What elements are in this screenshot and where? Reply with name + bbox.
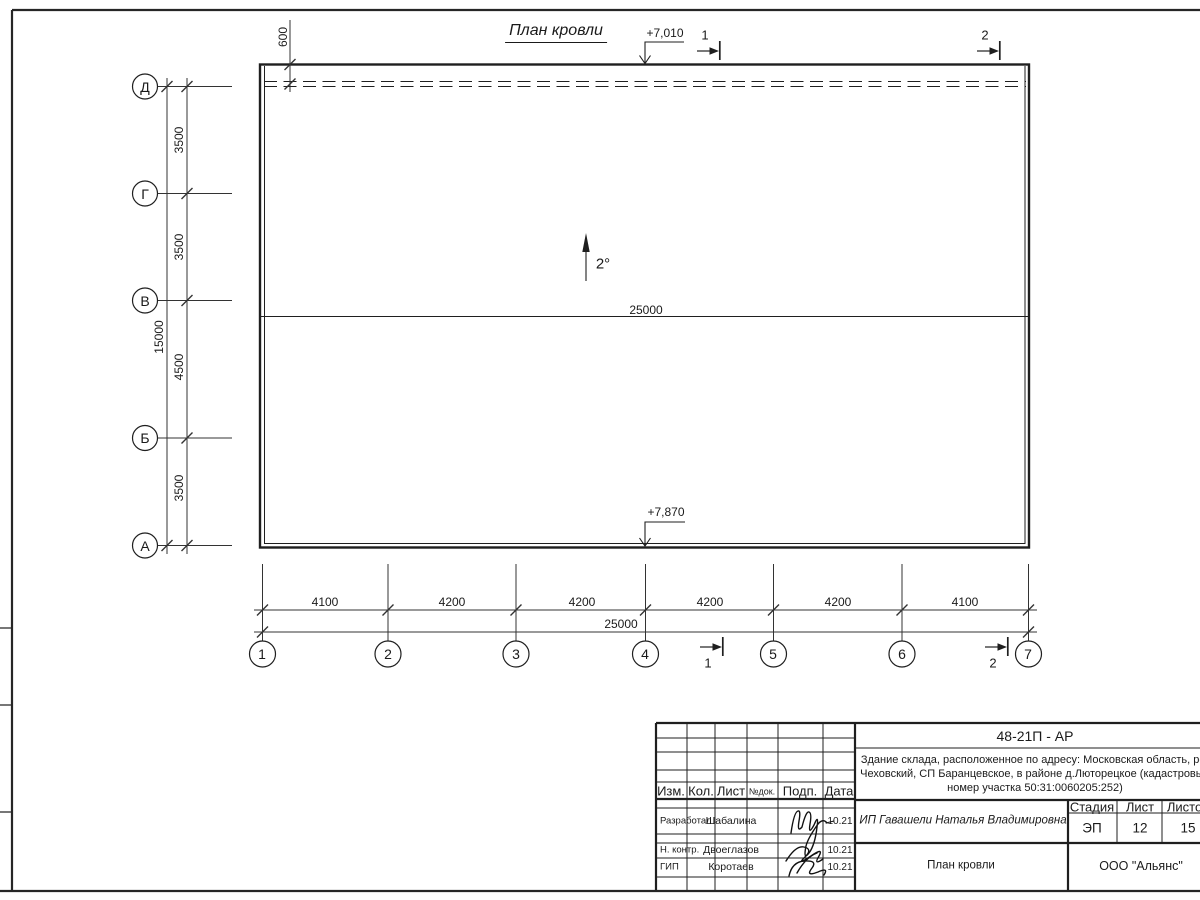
axis-left-b: Б: [140, 431, 149, 445]
client-name: ИП Гавашели Наталья Владимировна: [859, 815, 1066, 827]
col-data: Дата: [825, 785, 854, 798]
elevation-top-label: +7,010: [646, 27, 683, 39]
elevation-leaders: [640, 42, 686, 546]
drawing-sheet: План кровли +7,010 +7,870 600 2° 25000 1…: [0, 0, 1200, 900]
sheets-label: Листов: [1167, 801, 1200, 814]
titleblock-object-description: Здание склада, расположенное по адресу: …: [855, 749, 1200, 799]
slope-arrow: [582, 233, 589, 281]
dim-bottom-total: 25000: [604, 618, 637, 630]
dim-bottom-4: 4200: [697, 596, 724, 608]
stage-value: ЭП: [1082, 821, 1101, 835]
ridge-dim-label: 25000: [629, 304, 662, 316]
col-podp: Подп.: [783, 785, 818, 798]
dim-left-1: 3500: [173, 127, 185, 154]
axis-bottom-2: 2: [384, 647, 392, 661]
axis-left-d: Д: [140, 80, 149, 94]
axis-bottom-3: 3: [512, 647, 520, 661]
row-gip-name: Коротаев: [708, 862, 753, 873]
dim-bottom-6: 4100: [952, 596, 979, 608]
sheet-value: 12: [1132, 821, 1147, 835]
axis-bottom-7: 7: [1024, 647, 1032, 661]
sheet-label: Лист: [1126, 801, 1154, 814]
row-ncontrol-role: Н. контр.: [660, 845, 699, 855]
col-ndoc: №док.: [749, 788, 775, 797]
object-description-line2: Чеховский, СП Баранцевское, в районе д.Л…: [855, 767, 1200, 781]
section-marks: [697, 41, 1008, 656]
col-list: Лист: [717, 785, 745, 798]
company-name: ООО "Альянс": [1099, 860, 1183, 873]
row-ncontrol-date: 10.21: [827, 846, 852, 856]
section-mark-1-bottom: 1: [704, 657, 711, 670]
dim-left-total: 15000: [153, 320, 165, 353]
slope-label: 2°: [596, 257, 610, 272]
section-mark-2-bottom: 2: [989, 657, 996, 670]
col-kol: Кол.: [688, 785, 714, 798]
row-developer-name: Шабалина: [706, 816, 757, 827]
bottom-dimensions: [254, 564, 1037, 641]
dim-left-4: 3500: [173, 475, 185, 502]
row-gip-date: 10.21: [827, 863, 852, 873]
section-mark-2-top: 2: [981, 29, 988, 42]
axis-left-g: Г: [141, 187, 149, 201]
axis-left-a: А: [140, 539, 149, 553]
object-description-line1: Здание склада, расположенное по адресу: …: [855, 753, 1200, 767]
section-mark-1-top: 1: [701, 29, 708, 42]
row-developer-role: Разработал: [660, 816, 712, 826]
dim-bottom-3: 4200: [569, 596, 596, 608]
sheets-value: 15: [1180, 821, 1195, 835]
axis-bottom-4: 4: [641, 647, 649, 661]
drawing-title: План кровли: [505, 23, 607, 43]
dim-bottom-2: 4200: [439, 596, 466, 608]
dim-bottom-5: 4200: [825, 596, 852, 608]
dim-bottom-1: 4100: [312, 596, 339, 608]
row-ncontrol-name: Двоеглазов: [703, 845, 759, 856]
dim-left-2: 3500: [173, 234, 185, 261]
titleblock-drawing-title: План кровли: [927, 860, 995, 872]
axis-bottom-6: 6: [898, 647, 906, 661]
axis-left-v: В: [140, 294, 149, 308]
axis-bottom-5: 5: [769, 647, 777, 661]
titleblock-doc-code: 48-21П - АР: [997, 729, 1074, 743]
offset-dim-label: 600: [277, 27, 289, 47]
col-izm: Изм.: [657, 785, 685, 798]
dim-left-3: 4500: [173, 354, 185, 381]
object-description-line3: номер участка 50:31:0060205:252): [855, 781, 1200, 795]
axis-bubbles: [133, 74, 1042, 667]
elevation-bottom-label: +7,870: [647, 506, 684, 518]
row-developer-date: 10.21: [827, 817, 852, 827]
axis-bottom-1: 1: [258, 647, 266, 661]
stage-label: Стадия: [1070, 801, 1114, 814]
row-gip-role: ГИП: [660, 862, 679, 872]
